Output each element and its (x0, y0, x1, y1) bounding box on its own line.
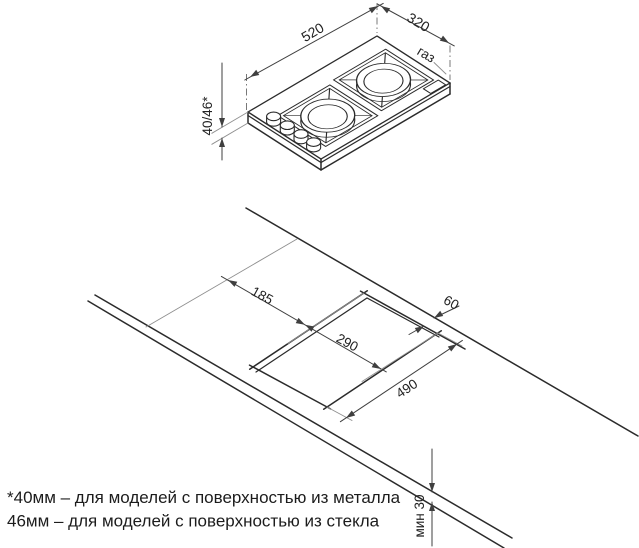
installation-drawing-page: 520 320 40/46* газ (0, 0, 639, 548)
cutout (250, 291, 466, 409)
footnotes: *40мм – для моделей с поверхностью из ме… (7, 488, 401, 531)
knob (294, 130, 308, 144)
installation-drawing-svg: 520 320 40/46* газ (0, 0, 639, 548)
knob (307, 138, 321, 152)
worktop-front-edge (88, 295, 512, 548)
gas-label: газ (415, 43, 446, 74)
knob (280, 121, 294, 135)
hob-body (248, 83, 450, 170)
knob (267, 112, 281, 126)
dim-label-60: 60 (441, 292, 461, 312)
dim-label-520: 520 (298, 19, 326, 45)
footnote-line-1: *40мм – для моделей с поверхностью из ме… (7, 488, 401, 507)
dim-label-290: 290 (334, 331, 361, 355)
footnote-line-2: 46мм – для моделей с поверхностью из сте… (7, 512, 380, 531)
dim-label-320: 320 (404, 9, 432, 35)
dim-min-30: мин 30 (412, 449, 435, 546)
dim-label-height: 40/46* (200, 96, 215, 136)
dim-290: 290 (305, 325, 438, 382)
burner-grid-left (278, 85, 378, 147)
worktop-back-edge (246, 208, 638, 436)
dim-height-40-46: 40/46* (200, 63, 248, 160)
hob-view: 520 320 40/46* газ (200, 3, 454, 170)
dim-label-490: 490 (393, 376, 420, 401)
dim-label-min-30: мин 30 (412, 494, 427, 537)
dim-label-185: 185 (249, 284, 276, 308)
